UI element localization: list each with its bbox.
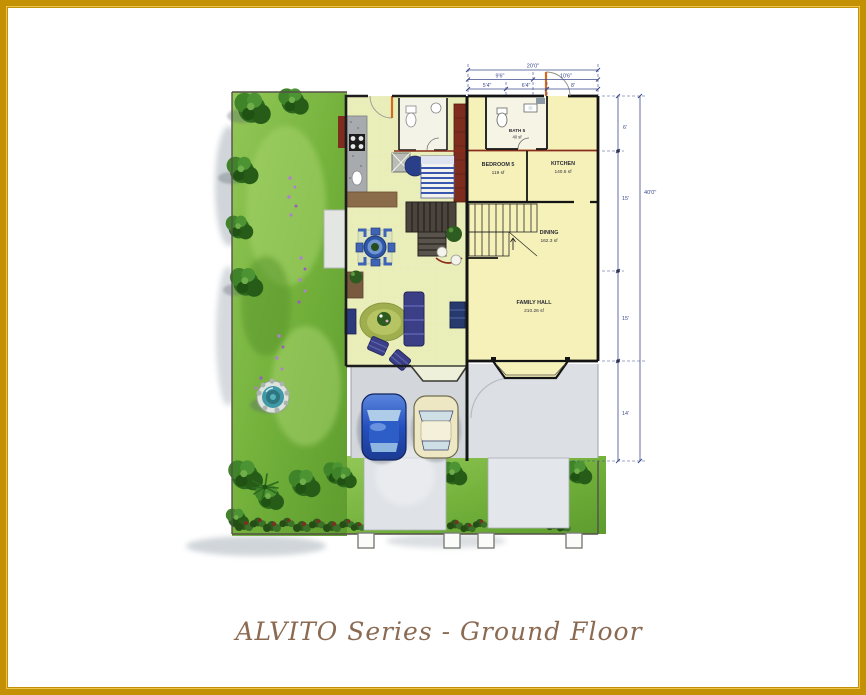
bedroom5-label: BEDROOM 5	[482, 162, 515, 168]
bath5-label: BATH 5	[509, 128, 526, 133]
sink-icon	[352, 171, 362, 185]
stove-icon	[349, 134, 365, 151]
dining-chair	[356, 243, 363, 252]
family-hall-label: FAMILY HALL	[516, 300, 552, 306]
dim-right-seg3: 15'	[622, 316, 629, 322]
dining-label: DINING	[540, 230, 559, 236]
dim-top-total: 20'0"	[527, 64, 539, 70]
dim-top-seg3: 8'	[571, 83, 575, 89]
dim-top-left: 9'6"	[496, 74, 505, 80]
framed-page: BATH 5 40 sf BEDROOM 5 119 sf KITCHEN 14…	[0, 0, 866, 695]
bedroom5-area: 119 sf	[492, 170, 505, 176]
toilet-icon	[406, 113, 416, 127]
stair-plant	[446, 226, 462, 242]
dim-right-seg1: 6'	[623, 125, 627, 131]
wardrobe	[454, 104, 467, 202]
floor-plan-image: BATH 5 40 sf BEDROOM 5 119 sf KITCHEN 14…	[6, 6, 866, 695]
left-unit	[338, 96, 467, 381]
tv-console	[450, 302, 465, 328]
dining-area: 162.3 sf	[540, 238, 558, 244]
dining-set	[356, 228, 395, 266]
garden-shadow	[186, 536, 326, 556]
dim-right-seg2: 15'	[622, 196, 629, 202]
dim-top-right: 10'6"	[560, 74, 572, 80]
sideboard-plant	[347, 271, 363, 299]
dining-chair	[388, 243, 395, 252]
table-centerpiece	[371, 243, 379, 251]
car-cream	[411, 396, 461, 462]
plan-caption: ALVITO Series - Ground Floor	[233, 617, 643, 646]
right-bay-window	[493, 361, 568, 378]
dining-chair	[371, 228, 380, 235]
patio-slab	[324, 210, 347, 268]
left-bathroom	[399, 98, 447, 150]
family-hall-area: 210.26 sf	[524, 308, 544, 314]
car-blue	[357, 394, 407, 464]
kitchen-area: 140.5 sf	[554, 169, 572, 175]
dim-top-seg1: 5'4"	[483, 83, 492, 89]
toilet-tank	[406, 106, 416, 113]
dim-right-seg4: 14'	[622, 411, 629, 417]
dining-chair	[371, 259, 380, 266]
column	[491, 357, 496, 362]
sofa	[404, 292, 424, 346]
coffee-plant	[377, 312, 391, 326]
shower-head	[536, 98, 545, 104]
toilet-icon	[497, 113, 507, 127]
bed-icon	[421, 156, 454, 198]
kitchen-label: KITCHEN	[551, 161, 575, 167]
bath5-fixtures	[486, 96, 547, 149]
column	[565, 357, 570, 362]
kitchen-cabinet	[347, 192, 397, 207]
basin-icon	[431, 103, 441, 113]
right-apron	[488, 458, 569, 528]
bath5-area: 40 sf	[512, 135, 522, 140]
dim-top-seg2: 6'4"	[522, 83, 531, 89]
dim-right-total: 40'0"	[644, 190, 656, 196]
